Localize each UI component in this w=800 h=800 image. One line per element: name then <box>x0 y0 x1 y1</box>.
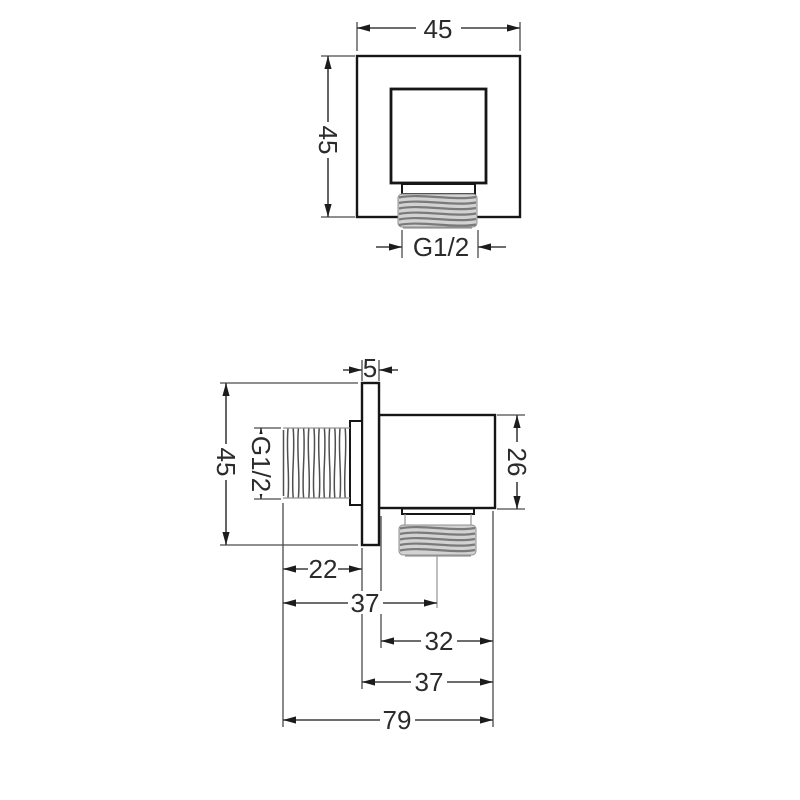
front-outlet-neck <box>402 184 475 194</box>
side-plate-thickness-dimension: 5 <box>343 353 398 383</box>
front-width-label: 45 <box>424 14 453 44</box>
front-height-label: 45 <box>313 126 343 155</box>
side-body-width-label: 32 <box>425 626 454 656</box>
front-thread <box>398 194 477 228</box>
front-view: 45 45 <box>313 14 520 262</box>
side-body-width-dimension: 32 <box>381 626 493 656</box>
side-thread-label: G1/2 <box>246 436 276 492</box>
technical-drawing-canvas: 45 45 <box>0 0 800 800</box>
side-outlet-center-label: 37 <box>351 588 380 618</box>
side-outlet-center-dimension: 37 <box>283 588 437 618</box>
side-thread-length-dimension: 22 <box>283 554 362 584</box>
side-thread-length-label: 22 <box>309 554 338 584</box>
front-thread-label: G1/2 <box>413 232 469 262</box>
side-height-dimension: 45 <box>211 383 358 545</box>
side-body-depth-label: 37 <box>415 667 444 697</box>
front-body-square <box>391 89 486 183</box>
side-body <box>379 415 495 508</box>
side-thread-dimension: G1/2 <box>246 428 281 499</box>
front-thread-dimension: G1/2 <box>376 230 506 262</box>
front-height-dimension: 45 <box>313 56 355 217</box>
side-total-depth-dimension: 79 <box>283 705 493 735</box>
side-wall-plate <box>362 383 379 545</box>
side-collar <box>350 421 362 505</box>
side-inlet-thread <box>283 428 350 498</box>
shower-outlet-dimension-drawing: 45 45 <box>0 0 800 800</box>
side-body-height-dimension: 26 <box>497 415 532 509</box>
side-outlet <box>399 509 476 609</box>
front-width-dimension: 45 <box>357 14 520 51</box>
side-body-depth-dimension: 37 <box>362 667 493 697</box>
side-body-height-label: 26 <box>502 448 532 477</box>
side-plate-thickness-label: 5 <box>363 353 377 383</box>
side-view: 5 45 <box>211 353 532 735</box>
side-height-label: 45 <box>211 448 241 477</box>
side-total-depth-label: 79 <box>383 705 412 735</box>
